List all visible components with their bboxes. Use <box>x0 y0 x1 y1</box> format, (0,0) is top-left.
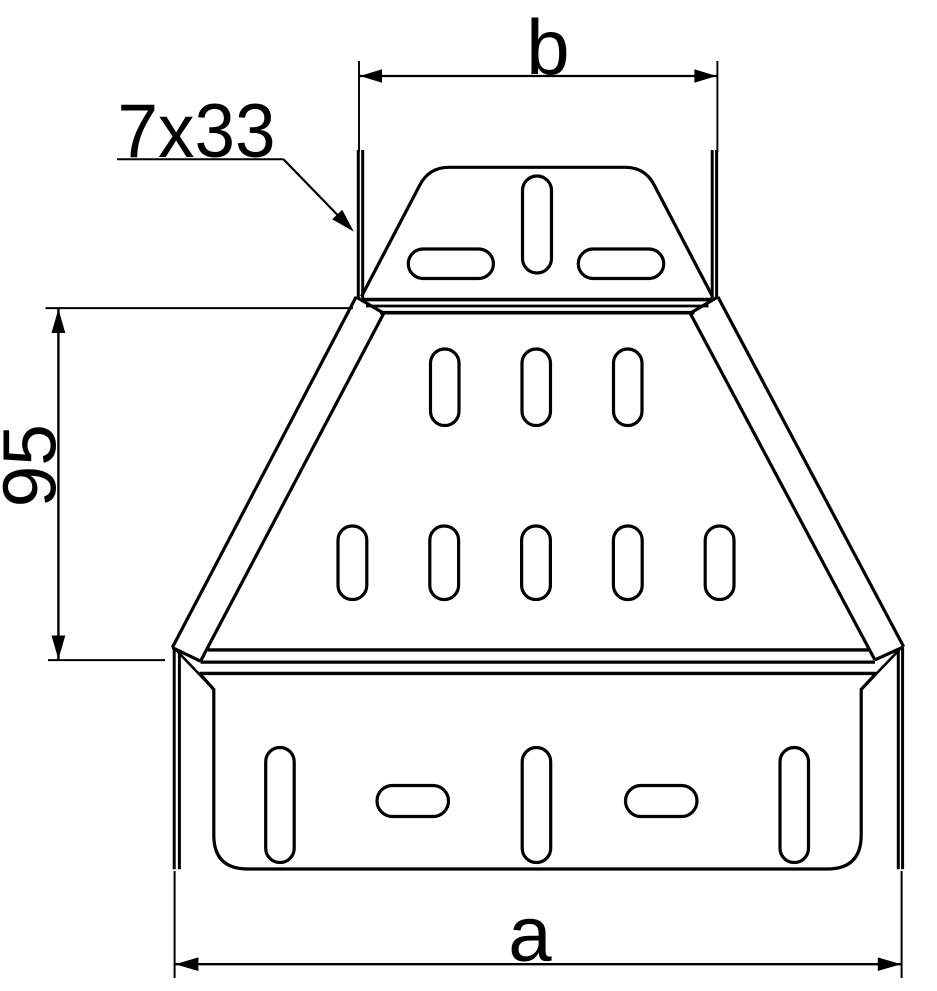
svg-text:b: b <box>526 3 569 91</box>
svg-text:95: 95 <box>0 424 72 507</box>
svg-text:7x33: 7x33 <box>118 89 276 174</box>
svg-text:a: a <box>508 890 552 978</box>
